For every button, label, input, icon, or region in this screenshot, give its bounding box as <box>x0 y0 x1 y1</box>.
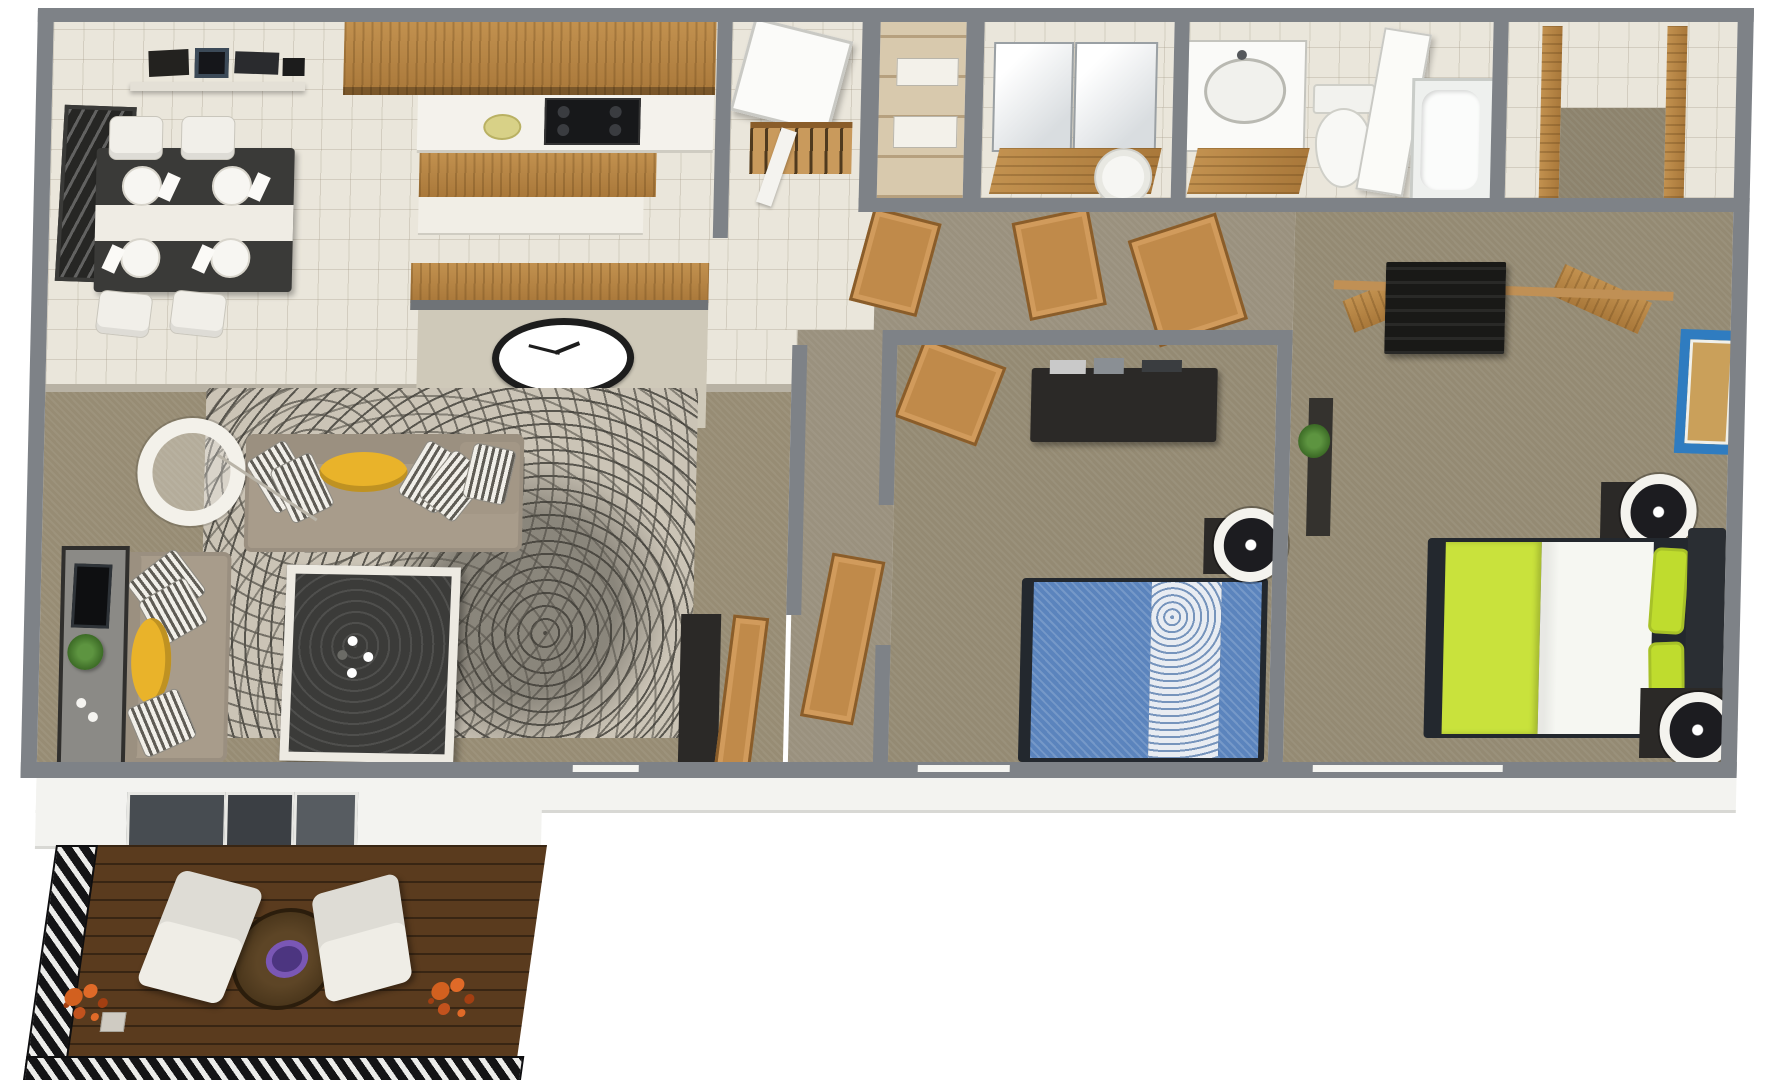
deck-zone <box>0 0 1787 1080</box>
deck-planter-box <box>100 1012 127 1032</box>
floor-plan-stage <box>0 0 1787 1080</box>
deck-railing-bottom <box>23 1056 525 1080</box>
deck-lounge-chair <box>311 872 413 1003</box>
